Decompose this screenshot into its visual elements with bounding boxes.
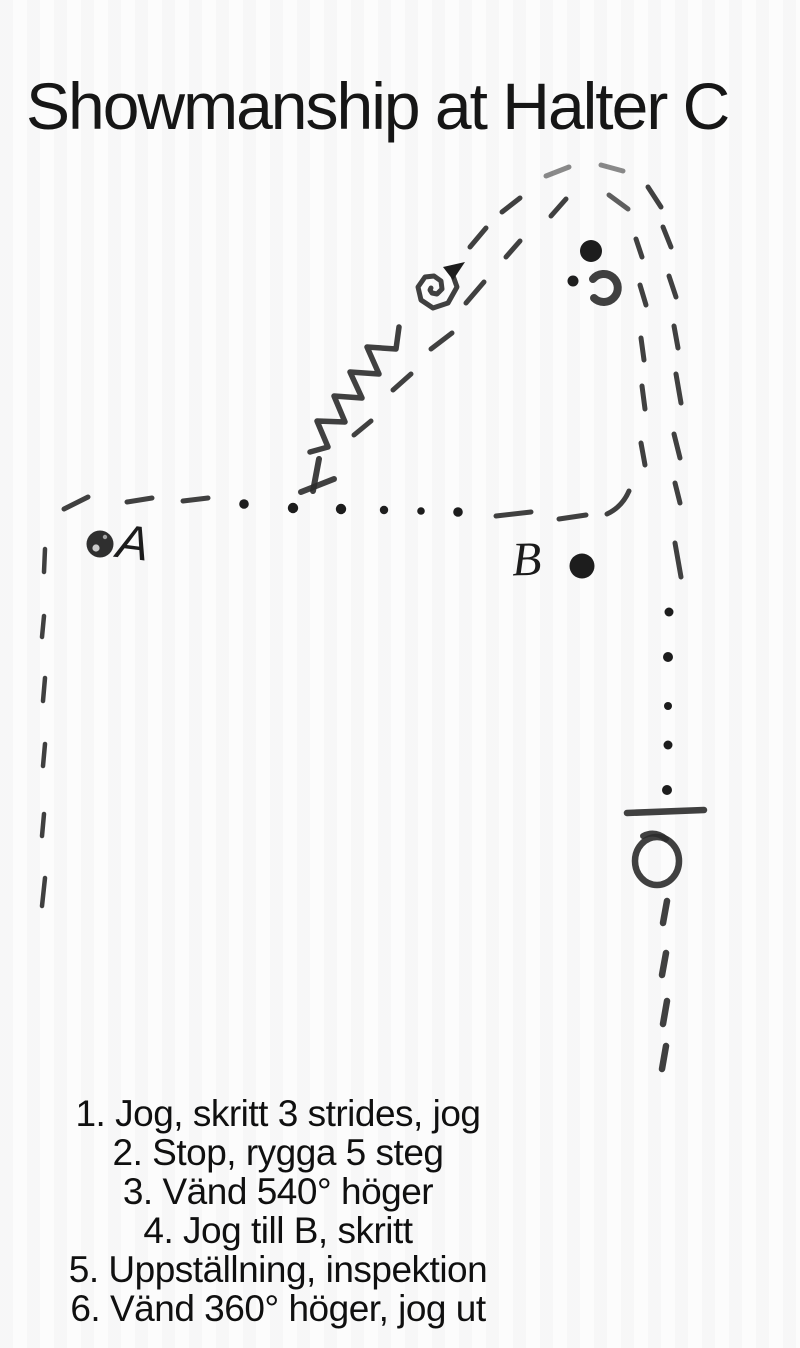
jog-dash — [669, 276, 676, 297]
jog-dash — [601, 165, 623, 171]
jog-dash — [642, 386, 645, 409]
jog-dash — [675, 543, 681, 577]
jog-dash — [431, 333, 452, 349]
instruction-line: 3. Vänd 540° höger — [0, 1172, 556, 1211]
jog-dash — [466, 282, 484, 303]
walk-dot — [665, 608, 674, 617]
jog-dash — [675, 483, 680, 503]
inspection-stop-bar — [627, 810, 704, 813]
marker-circle-top — [568, 274, 618, 302]
walk-dot — [664, 741, 673, 750]
entry-jog-dashed-line — [42, 549, 45, 906]
walk-dot — [336, 504, 346, 514]
jog-dash — [641, 443, 645, 465]
jog-dash — [662, 1046, 666, 1069]
jog-dash — [43, 744, 45, 766]
pattern-sheet: Showmanship at Halter C — [0, 0, 800, 1348]
marker-label-a: A — [114, 518, 152, 570]
walk-dot — [288, 503, 298, 513]
jog-dash — [42, 814, 44, 836]
cone-marker-a — [87, 531, 114, 558]
spiral-arrowhead — [443, 262, 465, 280]
circle-ink-blob — [568, 276, 579, 287]
walk-dot — [662, 785, 672, 795]
marker-label-b: B — [511, 536, 542, 585]
circle-stroke — [593, 274, 618, 302]
stop-mark — [301, 459, 334, 492]
cone-highlight — [103, 535, 107, 539]
turn-540-spiral — [418, 262, 465, 308]
jog-dash — [64, 497, 88, 509]
jog-dash — [663, 1001, 667, 1024]
marker-dot-top — [580, 240, 602, 262]
jog-dash — [663, 901, 667, 923]
jog-dash — [546, 167, 569, 176]
jog-dash — [609, 195, 628, 209]
jog-dash — [662, 953, 666, 975]
jog-dash — [506, 241, 520, 257]
jog-dash — [559, 515, 586, 519]
walk-dotted-line-top — [239, 499, 463, 517]
loop-inner-dashed-arc — [506, 195, 646, 465]
walk-dot — [664, 702, 672, 710]
jog-dash — [674, 434, 680, 458]
jog-dash — [496, 512, 531, 516]
marker-dot-b — [570, 554, 595, 579]
jog-dash — [393, 374, 411, 390]
walk-dot — [663, 652, 673, 662]
jog-dash — [43, 678, 45, 701]
jog-dash — [641, 338, 644, 360]
instruction-line: 1. Jog, skritt 3 strides, jog — [0, 1094, 556, 1133]
walk-dot — [380, 506, 388, 514]
jog-dash — [674, 326, 678, 348]
jog-dash — [636, 239, 642, 257]
jog-dashed-line-to-loop — [496, 491, 629, 519]
walk-dot — [417, 507, 425, 515]
instructions-list: 1. Jog, skritt 3 strides, jog 2. Stop, r… — [0, 1094, 556, 1328]
turn-circle-stroke — [635, 837, 679, 885]
instruction-line: 5. Uppställning, inspektion — [0, 1250, 556, 1289]
spiral-stroke — [418, 273, 457, 308]
jog-dash — [640, 285, 646, 305]
turn-360-circle — [635, 834, 679, 885]
walk-dot — [453, 507, 463, 517]
jog-dash — [42, 878, 45, 906]
jog-dash — [183, 498, 208, 501]
cone-scribble — [87, 531, 114, 558]
walk-dotted-line-right — [662, 608, 674, 796]
jog-dash — [470, 228, 486, 247]
jog-dash — [551, 199, 566, 216]
jog-dash — [648, 187, 661, 207]
exit-jog-dashed-line — [662, 901, 667, 1069]
jog-dash — [663, 227, 671, 247]
jog-dash — [127, 498, 152, 502]
jog-dash — [676, 374, 681, 403]
jog-dash — [502, 198, 520, 212]
jog-dash — [44, 549, 45, 572]
instruction-line: 4. Jog till B, skritt — [0, 1211, 556, 1250]
jog-dash-curved — [607, 491, 629, 514]
instruction-line: 2. Stop, rygga 5 steg — [0, 1133, 556, 1172]
cone-highlight — [92, 544, 99, 551]
jog-dashed-line-top — [64, 497, 208, 509]
instruction-line: 6. Vänd 360° höger, jog ut — [0, 1289, 556, 1328]
jog-dash — [42, 616, 44, 637]
jog-dash — [354, 421, 371, 435]
walk-dot — [239, 499, 249, 509]
